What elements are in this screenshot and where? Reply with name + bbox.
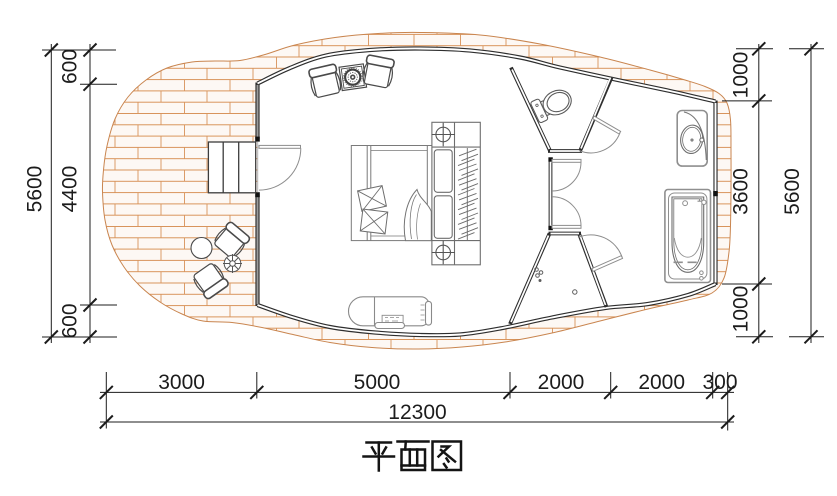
svg-text:600: 600 bbox=[59, 49, 82, 84]
svg-text:2000: 2000 bbox=[538, 371, 585, 394]
svg-text:12300: 12300 bbox=[388, 401, 446, 424]
svg-text:2000: 2000 bbox=[638, 371, 685, 394]
svg-text:5000: 5000 bbox=[354, 371, 401, 394]
svg-text:600: 600 bbox=[59, 303, 82, 338]
svg-text:5600: 5600 bbox=[781, 168, 804, 215]
svg-text:5600: 5600 bbox=[24, 166, 47, 213]
svg-text:1000: 1000 bbox=[730, 286, 753, 333]
svg-text:4400: 4400 bbox=[59, 166, 82, 213]
svg-text:3600: 3600 bbox=[730, 168, 753, 215]
svg-text:300: 300 bbox=[702, 371, 737, 394]
svg-text:3000: 3000 bbox=[158, 371, 205, 394]
svg-text:1000: 1000 bbox=[730, 52, 753, 99]
